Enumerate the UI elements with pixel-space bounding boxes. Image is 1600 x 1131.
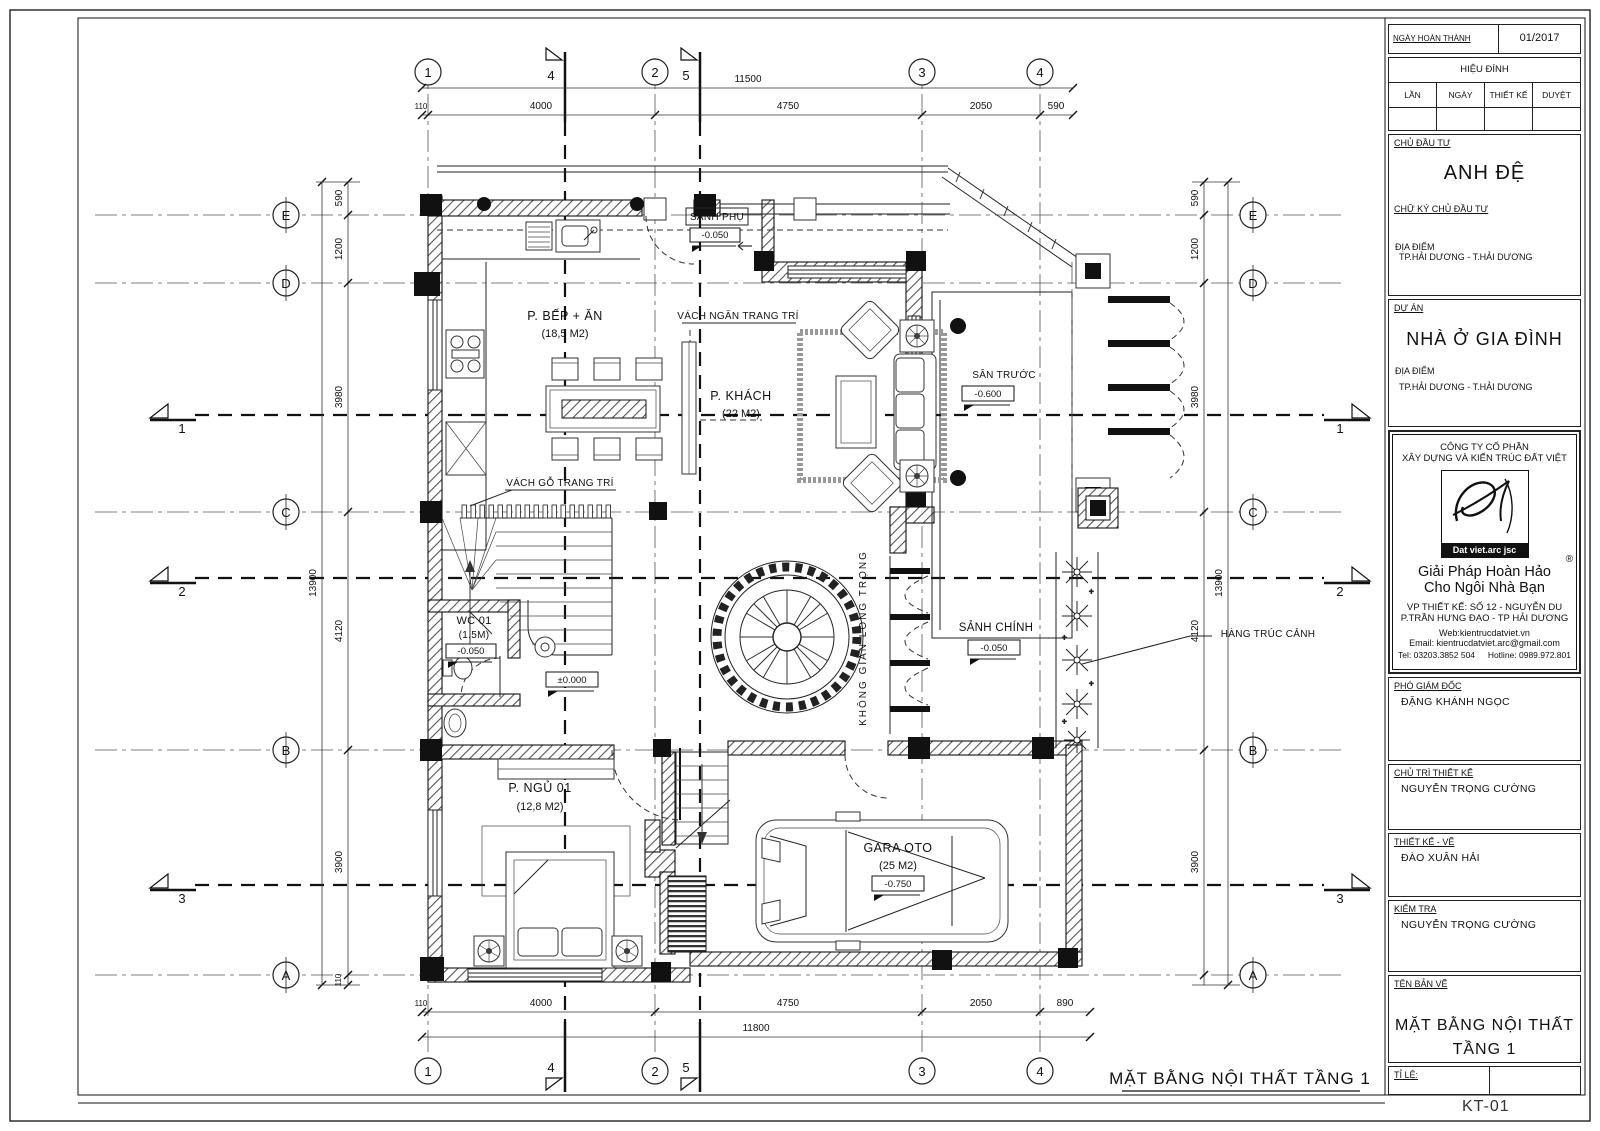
living-label: P. KHÁCH	[710, 388, 771, 403]
sub-lobby-label: SẢNH PHỤ	[690, 210, 744, 223]
circle-floor-pattern	[711, 561, 863, 713]
dim-bottom-4: 890	[1057, 998, 1074, 1009]
completion-date-box: NGÀY HOÀN THÀNH 01/2017	[1388, 24, 1581, 54]
wood-slat-wall	[460, 505, 612, 518]
section-label-1-right: 1	[1336, 421, 1343, 436]
sheet-code: KT-01	[1462, 1098, 1510, 1116]
section-label-3-left: 3	[178, 891, 185, 906]
dining-set	[546, 358, 662, 460]
company-hotline: Hotline: 0989.972.801	[1488, 650, 1571, 660]
deputy-director-label: PHÓ GIÁM ĐỐC	[1389, 678, 1580, 691]
investor-label: CHỦ ĐẦU TƯ	[1389, 135, 1580, 148]
void-space-label: KHÔNG GIAN LONG TRỌNG	[856, 550, 869, 726]
revision-col-duyet: DUYỆT	[1533, 83, 1580, 107]
drawing-name-line2: TẦNG 1	[1389, 1041, 1580, 1059]
dimensions-right: 590 1200 3980 4120 3900 13900	[1190, 178, 1240, 989]
location-label-2: ĐỊA ĐIỂM	[1389, 366, 1580, 376]
wood-wall-label: VÁCH GỖ TRANG TRÍ	[506, 476, 614, 489]
fridge	[446, 422, 486, 475]
dim-bottom-2: 4750	[777, 998, 800, 1009]
deputy-director-name: ĐẶNG KHÁNH NGỌC	[1389, 691, 1580, 708]
company-logo: Dat viet.arc jsc	[1441, 470, 1529, 558]
svg-text:+: +	[1062, 717, 1067, 726]
main-lobby-level-flag: -0.050	[968, 640, 1020, 665]
kitchen-fixtures	[442, 220, 640, 550]
drawing-sheet: 4 5 4 5 1 2 3 1 2 3 1 2 3 4 1 2 3 4 E D …	[0, 0, 1600, 1131]
office-line2: P.TRẦN HƯNG ĐẠO - TP HẢI DƯƠNG	[1390, 613, 1579, 624]
svg-text:-0.050: -0.050	[981, 643, 1008, 654]
designer-box: THIẾT KẾ - VẼ ĐÀO XUÂN HẢI	[1388, 833, 1581, 897]
completion-date-label: NGÀY HOÀN THÀNH	[1389, 25, 1499, 53]
dim-bottom-total: 11800	[742, 1023, 770, 1034]
cooktop	[446, 330, 484, 378]
grid-col-1-top: 1	[424, 65, 431, 80]
kitchen-label: P. BẾP + ĂN	[527, 308, 603, 323]
wc-label: WC 01	[456, 615, 491, 627]
dim-left-2: 3980	[334, 385, 345, 408]
revision-empty-2	[1437, 108, 1485, 131]
dim-left-total: 13900	[308, 569, 319, 597]
design-lead-label: CHỦ TRÌ THIẾT KẾ	[1389, 765, 1580, 778]
sink	[556, 220, 600, 252]
grid-col-4-top: 4	[1036, 65, 1043, 80]
revision-header: HIỆU ĐÍNH	[1389, 58, 1580, 83]
section-label-1-left: 1	[178, 421, 185, 436]
dim-top-4: 590	[1048, 101, 1065, 112]
dim-top-2: 4750	[777, 101, 800, 112]
bamboo-plants: ++ ++	[1062, 557, 1094, 753]
dim-bottom-1: 4000	[530, 998, 553, 1009]
revision-empty-3	[1485, 108, 1533, 131]
sub-lobby-level-flag: -0.050	[690, 228, 740, 252]
grid-col-2-top: 2	[651, 65, 658, 80]
kitchen-area: (18,5 M2)	[541, 328, 588, 340]
dimensions-top: 11500 110 4000 4750 2050 590	[415, 74, 1077, 119]
nightstand-right	[612, 936, 642, 966]
scale-label: TỈ LỆ:	[1389, 1067, 1489, 1080]
dim-left-3: 4120	[334, 619, 345, 642]
design-lead-name: NGUYỄN TRỌNG CƯỜNG	[1389, 778, 1580, 795]
checker-box: KIỂM TRA NGUYỄN TRỌNG CƯỜNG	[1388, 900, 1581, 972]
title-block: NGÀY HOÀN THÀNH 01/2017 HIỆU ĐÍNH LẦN NG…	[1388, 20, 1583, 1095]
checker-name: NGUYỄN TRỌNG CƯỜNG	[1389, 914, 1580, 931]
partition-label: VÁCH NGĂN TRANG TRÍ	[677, 309, 798, 322]
side-table-bottom	[900, 460, 934, 492]
svg-text:-0.750: -0.750	[885, 879, 912, 890]
dim-left-4: 3900	[334, 850, 345, 873]
section-label-5-top: 5	[682, 68, 689, 83]
revision-box: HIỆU ĐÍNH LẦN NGÀY THIẾT KẾ DUYỆT	[1388, 57, 1581, 131]
revision-col-thietke: THIẾT KẾ	[1485, 83, 1533, 107]
office-line1: VP THIẾT KẾ: SỐ 12 - NGUYỄN DU	[1390, 602, 1579, 613]
company-web: Web:kientrucdatviet.vn	[1390, 628, 1579, 638]
designer-label: THIẾT KẾ - VẼ	[1389, 834, 1580, 847]
location-label-1: ĐỊA ĐIỂM	[1389, 242, 1580, 252]
dim-left-1: 1200	[334, 237, 345, 260]
completion-date-value: 01/2017	[1499, 25, 1580, 53]
svg-text:-0.050: -0.050	[458, 646, 485, 657]
stair-level-flag: ±0.000	[546, 672, 598, 697]
living-area: (22 M2)	[722, 408, 760, 420]
garage-label: GARA OTO	[863, 841, 932, 855]
dim-bottom-3: 2050	[970, 998, 993, 1009]
section-label-2-right: 2	[1336, 584, 1343, 599]
revision-col-lan: LẦN	[1389, 83, 1437, 107]
side-table-top	[900, 320, 934, 352]
svg-text:+: +	[1089, 587, 1094, 596]
design-lead-box: CHỦ TRÌ THIẾT KẾ NGUYỄN TRỌNG CƯỜNG	[1388, 764, 1581, 830]
investor-sign-label: CHỮ KÝ CHỦ ĐẦU TƯ	[1389, 201, 1580, 214]
bamboo-planter: ++ ++	[1056, 488, 1118, 753]
svg-text:+: +	[1062, 633, 1067, 642]
grid-col-4-bottom: 4	[1036, 1064, 1043, 1079]
section-label-2-left: 2	[178, 584, 185, 599]
svg-text:-0.600: -0.600	[975, 389, 1002, 400]
bamboo-label: HÀNG TRÚC CẢNH	[1221, 627, 1316, 640]
front-yard-level-flag: -0.600	[962, 386, 1014, 411]
dim-top-total: 11500	[734, 74, 762, 85]
section-label-5-bottom: 5	[682, 1060, 689, 1075]
company-email: Email: kientrucdatviet.arc@gmail.com	[1390, 638, 1579, 648]
investor-name: ANH ĐỆ	[1389, 162, 1580, 185]
dish-drainer	[526, 222, 552, 250]
company-name-line2: XÂY DỰNG VÀ KIẾN TRÚC ĐẤT VIỆT	[1390, 453, 1579, 464]
bedroom-area: (12,8 M2)	[516, 801, 563, 813]
grid-col-3-top: 3	[918, 65, 925, 80]
project-box: DỰ ÁN NHÀ Ở GIA ĐÌNH ĐỊA ĐIỂM TP.HẢI DƯƠ…	[1388, 299, 1581, 427]
dim-left-110: 110	[334, 973, 343, 986]
dim-bottom-0: 110	[415, 999, 428, 1008]
dim-right-3: 4120	[1190, 619, 1201, 642]
scale-value	[1490, 1067, 1580, 1094]
section-label-4-bottom: 4	[547, 1060, 554, 1075]
garage-area: (25 M2)	[879, 860, 917, 872]
svg-text:-0.050: -0.050	[702, 230, 729, 241]
revision-col-ngay: NGÀY	[1437, 83, 1485, 107]
front-yard-label: SÂN TRƯỚC	[972, 368, 1036, 381]
front-porch	[932, 292, 1072, 638]
grid-col-1-bottom: 1	[424, 1064, 431, 1079]
dim-top-0: 110	[415, 102, 428, 111]
main-lobby-doors	[890, 556, 930, 734]
drawing-name-box: TÊN BẢN VẼ MẶT BẰNG NỘI THẤT TẦNG 1	[1388, 975, 1581, 1063]
nightstand-left	[474, 936, 504, 966]
dimensions-bottom: 110 4000 4750 2050 890 11800	[415, 998, 1094, 1041]
svg-text:±0.000: ±0.000	[558, 675, 587, 686]
slogan-line2: Cho Ngôi Nhà Bạn	[1390, 580, 1579, 596]
section-label-4-top: 4	[547, 68, 554, 83]
registered-mark: ®	[1566, 554, 1573, 565]
dim-top-1: 4000	[530, 101, 553, 112]
section-label-3-right: 3	[1336, 891, 1343, 906]
floor-plan-canvas: 4 5 4 5 1 2 3 1 2 3 1 2 3 4 1 2 3 4 E D …	[0, 0, 1600, 1131]
grid-col-3-bottom: 3	[918, 1064, 925, 1079]
project-label: DỰ ÁN	[1389, 300, 1580, 313]
slogan-line1: Giải Pháp Hoàn Hảo®	[1390, 564, 1579, 580]
dim-left-0: 590	[334, 189, 345, 206]
svg-text:+: +	[1089, 679, 1094, 688]
investor-box: CHỦ ĐẦU TƯ ANH ĐỆ CHỮ KÝ CHỦ ĐẦU TƯ ĐỊA …	[1388, 134, 1581, 296]
revision-empty-1	[1389, 108, 1437, 131]
bedroom-label: P. NGỦ 01	[508, 780, 571, 795]
dim-right-2: 3980	[1190, 385, 1201, 408]
dim-right-total: 13900	[1214, 569, 1225, 597]
deputy-director-box: PHÓ GIÁM ĐỐC ĐẶNG KHÁNH NGỌC	[1388, 677, 1581, 761]
dim-top-3: 2050	[970, 101, 993, 112]
designer-name: ĐÀO XUÂN HẢI	[1389, 847, 1580, 864]
revision-empty-4	[1533, 108, 1580, 131]
drawing-title: MẶT BẰNG NỘI THẤT TẦNG 1	[1109, 1069, 1371, 1091]
location-value-1: TP.HẢI DƯƠNG - T.HẢI DƯƠNG	[1389, 252, 1580, 262]
drawing-name-label: TÊN BẢN VẼ	[1389, 976, 1580, 989]
dim-right-1: 1200	[1190, 237, 1201, 260]
entrance-gates	[1072, 254, 1184, 512]
scale-box: TỈ LỆ:	[1388, 1066, 1581, 1095]
sofa-set	[800, 299, 944, 514]
wc-area: (1.5M)	[459, 630, 490, 641]
stairs-garage	[668, 752, 730, 952]
grid-col-2-bottom: 2	[651, 1064, 658, 1079]
company-box: CÔNG TY CỔ PHẦN XÂY DỰNG VÀ KIẾN TRÚC ĐẤ…	[1388, 430, 1581, 674]
checker-label: KIỂM TRA	[1389, 901, 1580, 914]
location-value-2: TP.HẢI DƯƠNG - T.HẢI DƯƠNG	[1389, 382, 1580, 392]
drawing-name-line1: MẶT BẰNG NỘI THẤT	[1389, 1017, 1580, 1035]
company-name-line1: CÔNG TY CỔ PHẦN	[1390, 442, 1579, 453]
logo-text: Dat viet.arc jsc	[1442, 543, 1528, 557]
company-tel: Tel: 03203.3852 504	[1398, 650, 1475, 660]
logo-monogram-icon	[1443, 471, 1526, 539]
drawing-title-text: MẶT BẰNG NỘI THẤT TẦNG 1	[1109, 1069, 1371, 1088]
dim-right-4: 3900	[1190, 850, 1201, 873]
dimensions-left: 590 1200 3980 4120 3900 110 13900	[308, 178, 360, 989]
dim-right-0: 590	[1190, 189, 1201, 206]
main-lobby-label: SẢNH CHÍNH	[959, 621, 1034, 634]
project-name: NHÀ Ở GIA ĐÌNH	[1389, 329, 1580, 350]
